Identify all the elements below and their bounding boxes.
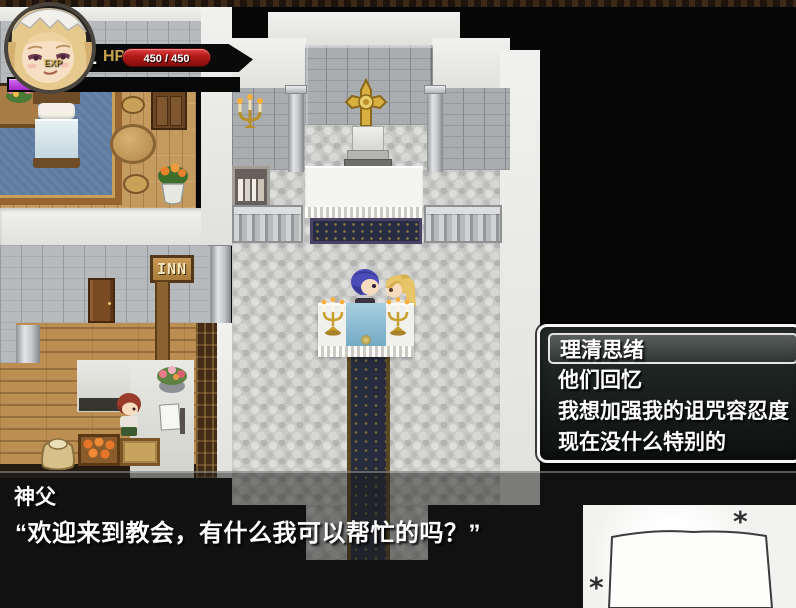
high-altar-fringe <box>305 207 423 218</box>
church-column-left-capital <box>285 85 307 94</box>
player-portrait <box>4 2 96 94</box>
menu-item-their-memories[interactable]: 他们回忆 <box>548 365 796 396</box>
menu-item-strengthen-curse-tolerance[interactable]: 我想加强我的诅咒容忍度 <box>548 396 796 427</box>
high-altar <box>305 166 423 218</box>
church-shoulder-right <box>432 38 510 88</box>
wood-post <box>155 280 170 364</box>
menu-item-sort-thoughts[interactable]: 理清思绪 <box>548 333 796 364</box>
church-column-right <box>427 88 443 172</box>
lobby-white-pillar <box>16 325 40 363</box>
bed-footboard <box>33 158 80 168</box>
hud: LV 1 HP 450 / 450 EXP <box>0 0 280 100</box>
menu-item-nothing-special[interactable]: 现在没什么特别的 <box>548 427 796 458</box>
sketch-asterisk-top-right: * <box>733 505 748 538</box>
menu-item-label: 我想加强我的诅咒容忍度 <box>558 400 789 423</box>
inn-sign: INN <box>150 255 194 283</box>
dialog-text: “欢迎来到教会，有什么我可以帮忙的吗？” <box>15 513 481 548</box>
sketch-asterisk-bottom-left: * <box>589 571 604 604</box>
inn-lattice-wall <box>196 323 217 478</box>
hp-value: 450 / 450 <box>144 53 190 65</box>
register-stand <box>180 408 185 434</box>
stool-bottom <box>123 174 149 194</box>
balustrade-left <box>232 205 303 243</box>
cabinet-door-right <box>170 96 182 126</box>
round-table <box>110 124 156 164</box>
lobby-brick-corner <box>0 323 16 363</box>
church-column-left <box>288 88 304 172</box>
door-knob <box>108 302 111 305</box>
altar-emblem <box>361 335 371 345</box>
carrots <box>82 438 116 462</box>
church-column-right-capital <box>424 85 446 94</box>
grain-sack <box>36 434 80 470</box>
exp-label: EXP <box>44 58 62 68</box>
menu-item-label: 现在没什么特别的 <box>558 431 726 454</box>
sketch-box-drawing <box>583 505 796 608</box>
innkeeper-sprite[interactable] <box>112 392 146 438</box>
cross-pedestal <box>352 126 384 152</box>
menu-item-label: 他们回忆 <box>558 369 642 392</box>
counter-flowers <box>153 362 191 394</box>
flower-pot <box>156 162 190 206</box>
cabinet-door-left <box>156 96 168 126</box>
bed-blanket <box>35 119 78 159</box>
bed <box>33 90 80 168</box>
inn-sign-label: INN <box>157 260 187 278</box>
inn-door[interactable] <box>88 278 115 323</box>
books <box>238 179 264 201</box>
hp-label: HP <box>103 48 125 66</box>
street-column <box>211 239 231 325</box>
high-altar-carpet <box>310 218 422 244</box>
mid-altar-fringe <box>318 346 414 357</box>
hp-bar: 450 / 450 <box>123 49 210 66</box>
wood-crate <box>120 438 160 466</box>
game-screen: INN <box>0 0 796 608</box>
bookshelf-niche <box>232 166 270 210</box>
menu-item-label: 理清思绪 <box>560 339 644 362</box>
gold-cross-icon <box>344 78 388 132</box>
balustrade-right <box>424 205 502 243</box>
bed-pillow <box>38 103 75 119</box>
choice-window: 理清思绪 他们回忆 我想加强我的诅咒容忍度 现在没什么特别的 <box>537 324 796 463</box>
carrot-crate <box>78 434 120 466</box>
dialog-speaker: 神父 <box>14 481 56 511</box>
sketch-panel: * * <box>583 505 796 608</box>
candelabra-left-icon <box>320 296 346 336</box>
register-page <box>159 403 181 430</box>
guest-register[interactable] <box>158 402 190 436</box>
candelabra-right-icon <box>385 296 411 336</box>
